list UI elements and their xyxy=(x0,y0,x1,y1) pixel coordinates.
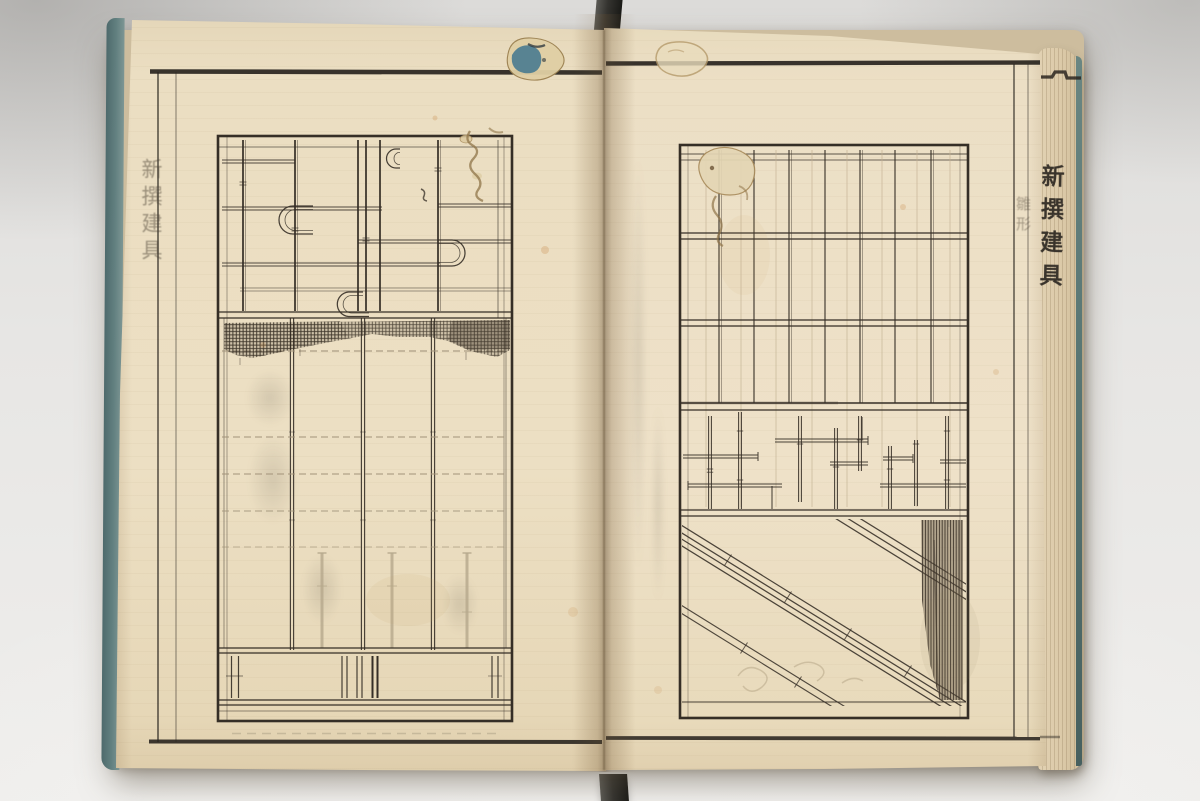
top-edge-stain-blue xyxy=(507,38,564,80)
wormhole-trail-left xyxy=(460,128,503,201)
spine-title-faint: 雛形 xyxy=(1013,196,1034,236)
top-edge-stain-tan xyxy=(656,42,708,76)
left-margin-title: 新撰建具 xyxy=(136,158,166,266)
damage-overlay xyxy=(0,0,1200,801)
toning-blotches xyxy=(366,215,980,690)
photo-background: 新撰建具 新撰建具 雛形 xyxy=(0,0,1200,801)
spine-title: 新撰建具 xyxy=(1031,164,1068,297)
